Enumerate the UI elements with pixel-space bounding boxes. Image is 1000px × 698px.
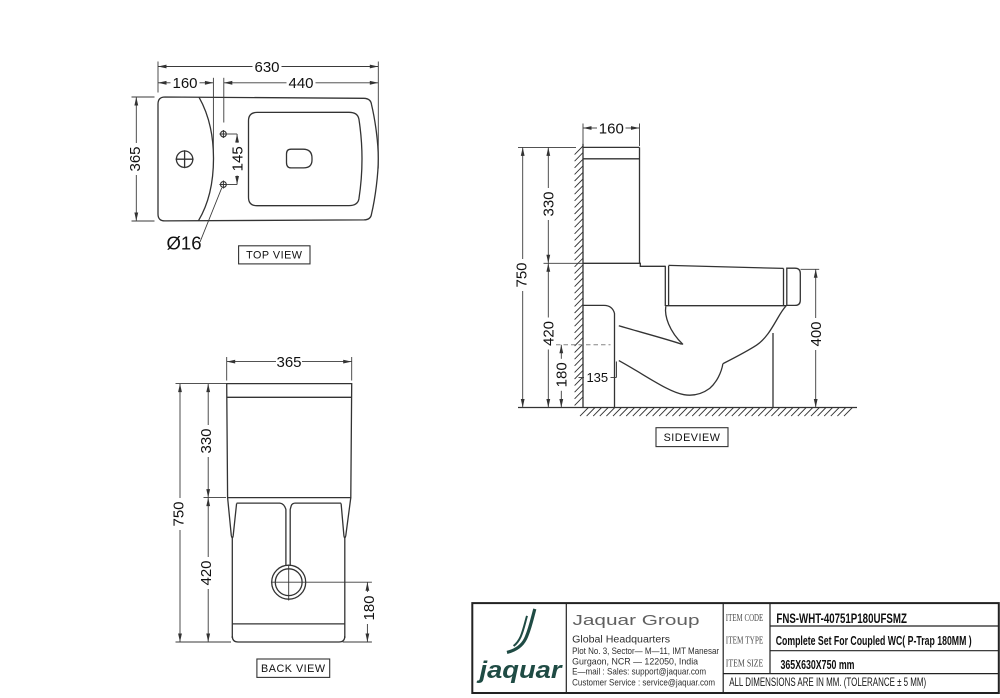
svg-text:420: 420 bbox=[198, 560, 215, 585]
svg-text:Customer Service : service@jaq: Customer Service : service@jaquar.com bbox=[572, 677, 715, 687]
svg-text:ITEM SIZE: ITEM SIZE bbox=[726, 659, 764, 670]
svg-text:630: 630 bbox=[254, 59, 279, 76]
svg-text:330: 330 bbox=[541, 191, 558, 216]
svg-text:SIDEVIEW: SIDEVIEW bbox=[664, 432, 721, 444]
svg-text:Ø16: Ø16 bbox=[167, 233, 202, 254]
svg-text:Complete Set For Coupled WC( P: Complete Set For Coupled WC( P-Trap 180M… bbox=[776, 633, 972, 648]
svg-text:E—mail : Sales: support@jaquar: E—mail : Sales: support@jaquar.com bbox=[572, 666, 706, 676]
svg-text:365: 365 bbox=[127, 146, 144, 171]
svg-text:750: 750 bbox=[514, 262, 531, 287]
svg-text:ITEM CODE: ITEM CODE bbox=[726, 613, 764, 624]
svg-text:180: 180 bbox=[361, 595, 378, 620]
svg-text:TOP VIEW: TOP VIEW bbox=[246, 250, 303, 262]
svg-text:FNS-WHT-40751P180UFSMZ: FNS-WHT-40751P180UFSMZ bbox=[776, 611, 907, 626]
svg-text:160: 160 bbox=[172, 75, 197, 92]
svg-text:Jaquar Group: Jaquar Group bbox=[573, 613, 700, 629]
svg-text:440: 440 bbox=[288, 75, 313, 92]
svg-text:400: 400 bbox=[808, 321, 825, 346]
svg-text:jaquar: jaquar bbox=[476, 657, 563, 684]
svg-text:160: 160 bbox=[599, 120, 624, 137]
svg-text:Plot No. 3, Sector— M—11, IMT: Plot No. 3, Sector— M—11, IMT Manesar bbox=[572, 646, 719, 656]
svg-text:365: 365 bbox=[276, 354, 301, 371]
svg-text:180: 180 bbox=[554, 362, 571, 387]
svg-text:Global Headquarters: Global Headquarters bbox=[572, 635, 670, 646]
svg-text:750: 750 bbox=[171, 501, 188, 526]
svg-text:365X630X750 mm: 365X630X750 mm bbox=[781, 657, 855, 672]
svg-text:ITEM TYPE: ITEM TYPE bbox=[726, 635, 764, 646]
svg-text:ALL DIMENSIONS ARE IN MM. (TOL: ALL DIMENSIONS ARE IN MM. (TOLERANCE ± 5… bbox=[729, 675, 926, 689]
svg-text:420: 420 bbox=[541, 321, 558, 346]
svg-text:Gurgaon, NCR — 122050, India: Gurgaon, NCR — 122050, India bbox=[572, 656, 699, 666]
svg-text:135: 135 bbox=[586, 370, 608, 385]
svg-text:145: 145 bbox=[230, 146, 247, 171]
svg-text:330: 330 bbox=[198, 428, 215, 453]
svg-text:BACK VIEW: BACK VIEW bbox=[261, 663, 326, 675]
